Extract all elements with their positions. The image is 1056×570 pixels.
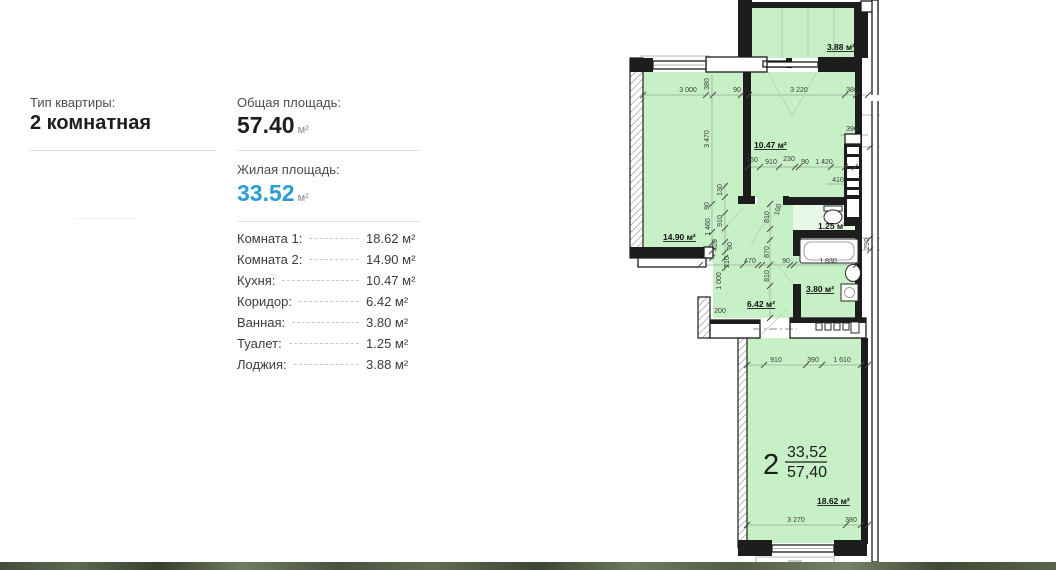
photo-strip [0,562,1056,570]
dimension-label: 1 830 [819,258,837,265]
room-area-label: 10.47 м² [754,140,787,150]
dimension-label: 200 [714,308,726,315]
dimension-label: 90 [782,258,790,265]
dimension-label: 910 [770,357,782,364]
dimension-label: 380 [846,87,858,94]
unit-total-area: 57,40 [787,464,827,481]
dimension-label: 380 [845,517,857,524]
dimension-label: 390 [807,357,819,364]
dimension-label: 130 [717,184,724,196]
dimension-label: 390 [846,126,858,133]
dimension-label: 90 [733,87,741,94]
dimension-label: 910 [765,159,777,166]
dimension-label: 1 420 [815,159,833,166]
dimension-label: 90 [801,159,809,166]
dimension-label: 410 [832,177,844,184]
room-area-label: 14.90 м² [663,232,696,242]
dimension-label: 3 470 [704,130,711,148]
dimension-label: 870 [764,246,771,258]
dimension-label: 380 [704,78,711,90]
floor-plan-drawing: 2 33,52 57,40 3 000380903 2203803 470390… [0,0,1056,570]
dimension-label: 420 [712,239,719,251]
unit-summary-label: 2 33,52 57,40 [763,444,827,481]
unit-rooms-number: 2 [763,449,779,481]
unit-living-area: 33,52 [787,444,827,461]
washing-machine-icon [841,284,858,301]
dimension-label: 230 [783,156,795,163]
room-area-label: 1.25 м² [818,221,846,231]
dimension-label: 3 270 [787,517,805,524]
room-area-label: 3.80 м² [806,284,834,294]
dimension-label: 3 000 [679,87,697,94]
dimension-label: 290 [864,238,871,250]
dimension-label: 90 [704,202,711,210]
room-fills [643,8,861,543]
apartment-page: Тип квартиры: 2 комнатная Общая площадь:… [0,0,1056,570]
dimension-label: 810 [764,211,771,223]
dimension-label: 3 220 [790,87,808,94]
dimension-label: 470 [744,258,756,265]
room-area-label: 18.62 м² [817,496,850,506]
dimension-label: 1 460 [705,218,712,236]
dimension-label: 1 610 [833,357,851,364]
room-area-label: 3.88 м² [827,42,855,52]
dimension-label: 810 [764,270,771,282]
dimension-label: 160 [746,157,758,164]
dimension-label: 910 [717,215,724,227]
dimension-label: 1 000 [716,272,723,290]
dimension-label: 210 [724,256,731,268]
room-area-label: 6.42 м² [747,299,775,309]
washbasin-icon [846,265,861,282]
vent-shaft [844,134,862,226]
dimension-label: 90 [727,242,734,250]
